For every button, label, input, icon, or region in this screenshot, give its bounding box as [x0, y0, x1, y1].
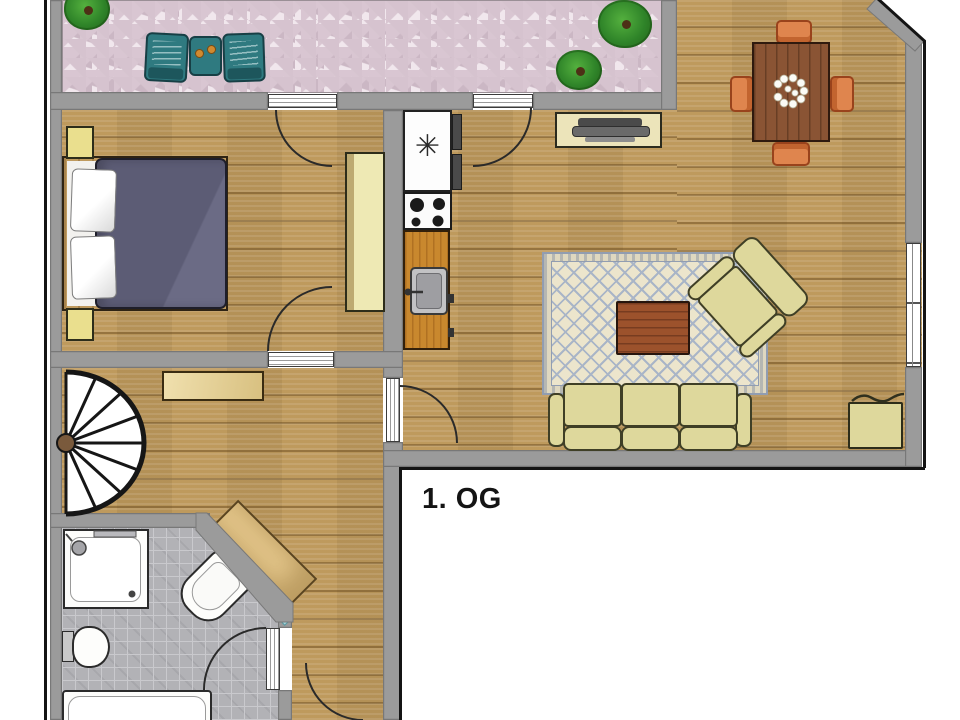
chair-cushion-pattern — [152, 40, 182, 65]
wall-right-upper — [905, 38, 922, 243]
wall-terrace-right — [661, 0, 677, 110]
stove — [403, 192, 452, 230]
nightstand — [66, 126, 94, 159]
wardrobe — [345, 152, 385, 312]
tv-icon — [572, 126, 650, 137]
terrace-chair-right — [222, 32, 266, 82]
wall-bedroom-bottom-1 — [50, 351, 268, 368]
wall-right-lower — [905, 367, 922, 467]
wall-bathroom-top — [50, 513, 210, 528]
door-leaf-terrace-bedroom — [268, 94, 337, 108]
cup-icon — [207, 45, 216, 54]
coffee-table — [616, 301, 690, 355]
label-area: 1. OG — [399, 467, 925, 720]
outside-white-br — [925, 467, 960, 720]
wall-terrace-bottom-2 — [337, 92, 473, 110]
terrace-side-table — [189, 36, 222, 76]
appliance-handle — [452, 114, 462, 150]
potted-plant-icon — [556, 50, 602, 90]
sofa-seat-cushion — [679, 383, 738, 427]
door-frame-bathroom — [280, 628, 292, 690]
chair-frame — [227, 67, 261, 79]
chair-frame — [148, 67, 184, 80]
living-lowboard — [848, 402, 903, 449]
freezer-symbol-icon: ✳ — [405, 132, 450, 162]
nightstand — [66, 308, 94, 341]
window-right-wall — [906, 243, 921, 367]
potted-plant-icon — [598, 0, 652, 48]
shower-tray — [70, 537, 141, 602]
floor-plan: ✳ — [0, 0, 960, 720]
bed-pillow — [70, 168, 117, 233]
wall-mid-vertical-upper — [383, 110, 403, 378]
toilet — [72, 626, 110, 668]
outer-wall-line-left — [44, 0, 47, 720]
counter-knob — [448, 328, 454, 337]
wall-bedroom-bottom-2 — [334, 351, 403, 368]
hall-shelf — [162, 371, 264, 401]
kitchen-sink-basin — [416, 273, 442, 309]
bathtub-inner — [68, 696, 206, 720]
dining-chair-right — [830, 76, 854, 112]
cup-icon — [195, 49, 204, 58]
fridge: ✳ — [403, 110, 452, 192]
wall-terrace-bottom-3 — [533, 92, 677, 110]
door-leaf-bathroom — [266, 628, 280, 690]
wall-terrace-bottom-1 — [50, 92, 268, 110]
dining-table — [752, 42, 830, 142]
sofa-back-cushion — [563, 426, 622, 451]
dining-chair-left — [730, 76, 754, 112]
sofa-back-cushion — [621, 426, 680, 451]
sofa — [548, 383, 752, 453]
appliance-handle — [452, 154, 462, 190]
bed-pillow — [70, 235, 117, 300]
dining-chair-bottom — [772, 142, 810, 166]
sofa-seat-cushion — [621, 383, 680, 427]
door-leaf-terrace-living — [473, 94, 533, 108]
dining-chair-top — [776, 20, 812, 44]
terrace-chair-left — [144, 32, 190, 83]
sofa-seat-cushion — [563, 383, 622, 427]
chair-cushion-pattern — [229, 41, 258, 66]
counter-knob — [448, 294, 454, 303]
door-leaf-hall-living — [386, 378, 400, 442]
sofa-back-cushion — [679, 426, 738, 451]
floor-label: 1. OG — [422, 483, 502, 516]
door-leaf-bedroom-hall — [268, 352, 334, 367]
tv-icon — [585, 137, 635, 142]
wall-bathroom-right-2 — [278, 690, 292, 720]
